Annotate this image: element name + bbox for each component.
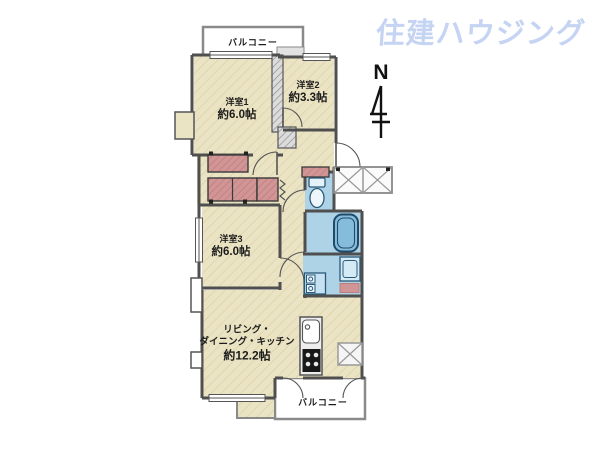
north-arrow-icon <box>370 86 390 138</box>
wash-basin-icon <box>305 273 326 294</box>
shoe-cabinet <box>302 167 329 177</box>
closet-c <box>257 178 278 201</box>
mat <box>340 284 359 293</box>
floorplan-drawing <box>0 0 600 450</box>
ldk-name-line1: リビング・ <box>199 325 294 337</box>
refrigerator-space-icon <box>338 343 362 365</box>
closet-a <box>208 155 248 172</box>
bedroom1-name: 洋室1 <box>218 97 257 108</box>
hallway-floor-right <box>278 175 305 296</box>
pipe-space <box>191 278 202 312</box>
room-label-balcony-top: バルコニー <box>228 37 278 48</box>
bedroom3-window <box>196 218 203 262</box>
bedroom3-area: 約6.0帖 <box>212 245 251 259</box>
kitchen-counter <box>300 317 322 375</box>
stove-icon <box>303 349 321 372</box>
agency-watermark: 住建ハウジング <box>375 10 588 52</box>
room-label-ldk: リビング・ ダイニング・キッチン 約12.2帖 <box>199 325 294 364</box>
bay-window <box>175 112 194 139</box>
ldk-name-line2: ダイニング・キッチン <box>199 337 294 349</box>
bedroom3-name: 洋室3 <box>212 234 251 245</box>
bedroom1-area: 約6.0帖 <box>218 108 257 122</box>
entrance-door <box>336 143 360 167</box>
room-label-bedroom2: 洋室2 約3.3帖 <box>289 80 328 106</box>
bedroom1-balcony-window <box>210 52 272 59</box>
floorplan-canvas: 住建ハウジング N バルコニー 洋室1 約6.0帖 洋室2 約3.3帖 洋室3 … <box>0 0 600 450</box>
ldk-area: 約12.2帖 <box>199 348 294 363</box>
bedroom2-area: 約3.3帖 <box>289 91 328 105</box>
common-corridor <box>334 167 392 193</box>
washer-pan-icon <box>340 257 360 293</box>
room-label-bedroom1: 洋室1 約6.0帖 <box>218 97 257 123</box>
ldk-window <box>209 395 265 402</box>
bedroom2-window <box>303 54 330 61</box>
north-label: N <box>373 61 388 85</box>
bedroom2-name: 洋室2 <box>289 80 328 91</box>
room-label-balcony-bottom: バルコニー <box>298 397 348 408</box>
room-label-bedroom3: 洋室3 約6.0帖 <box>212 234 251 260</box>
kitchen-sink-icon <box>303 320 320 343</box>
bathtub-icon <box>334 215 358 252</box>
toilet-icon <box>309 178 325 208</box>
